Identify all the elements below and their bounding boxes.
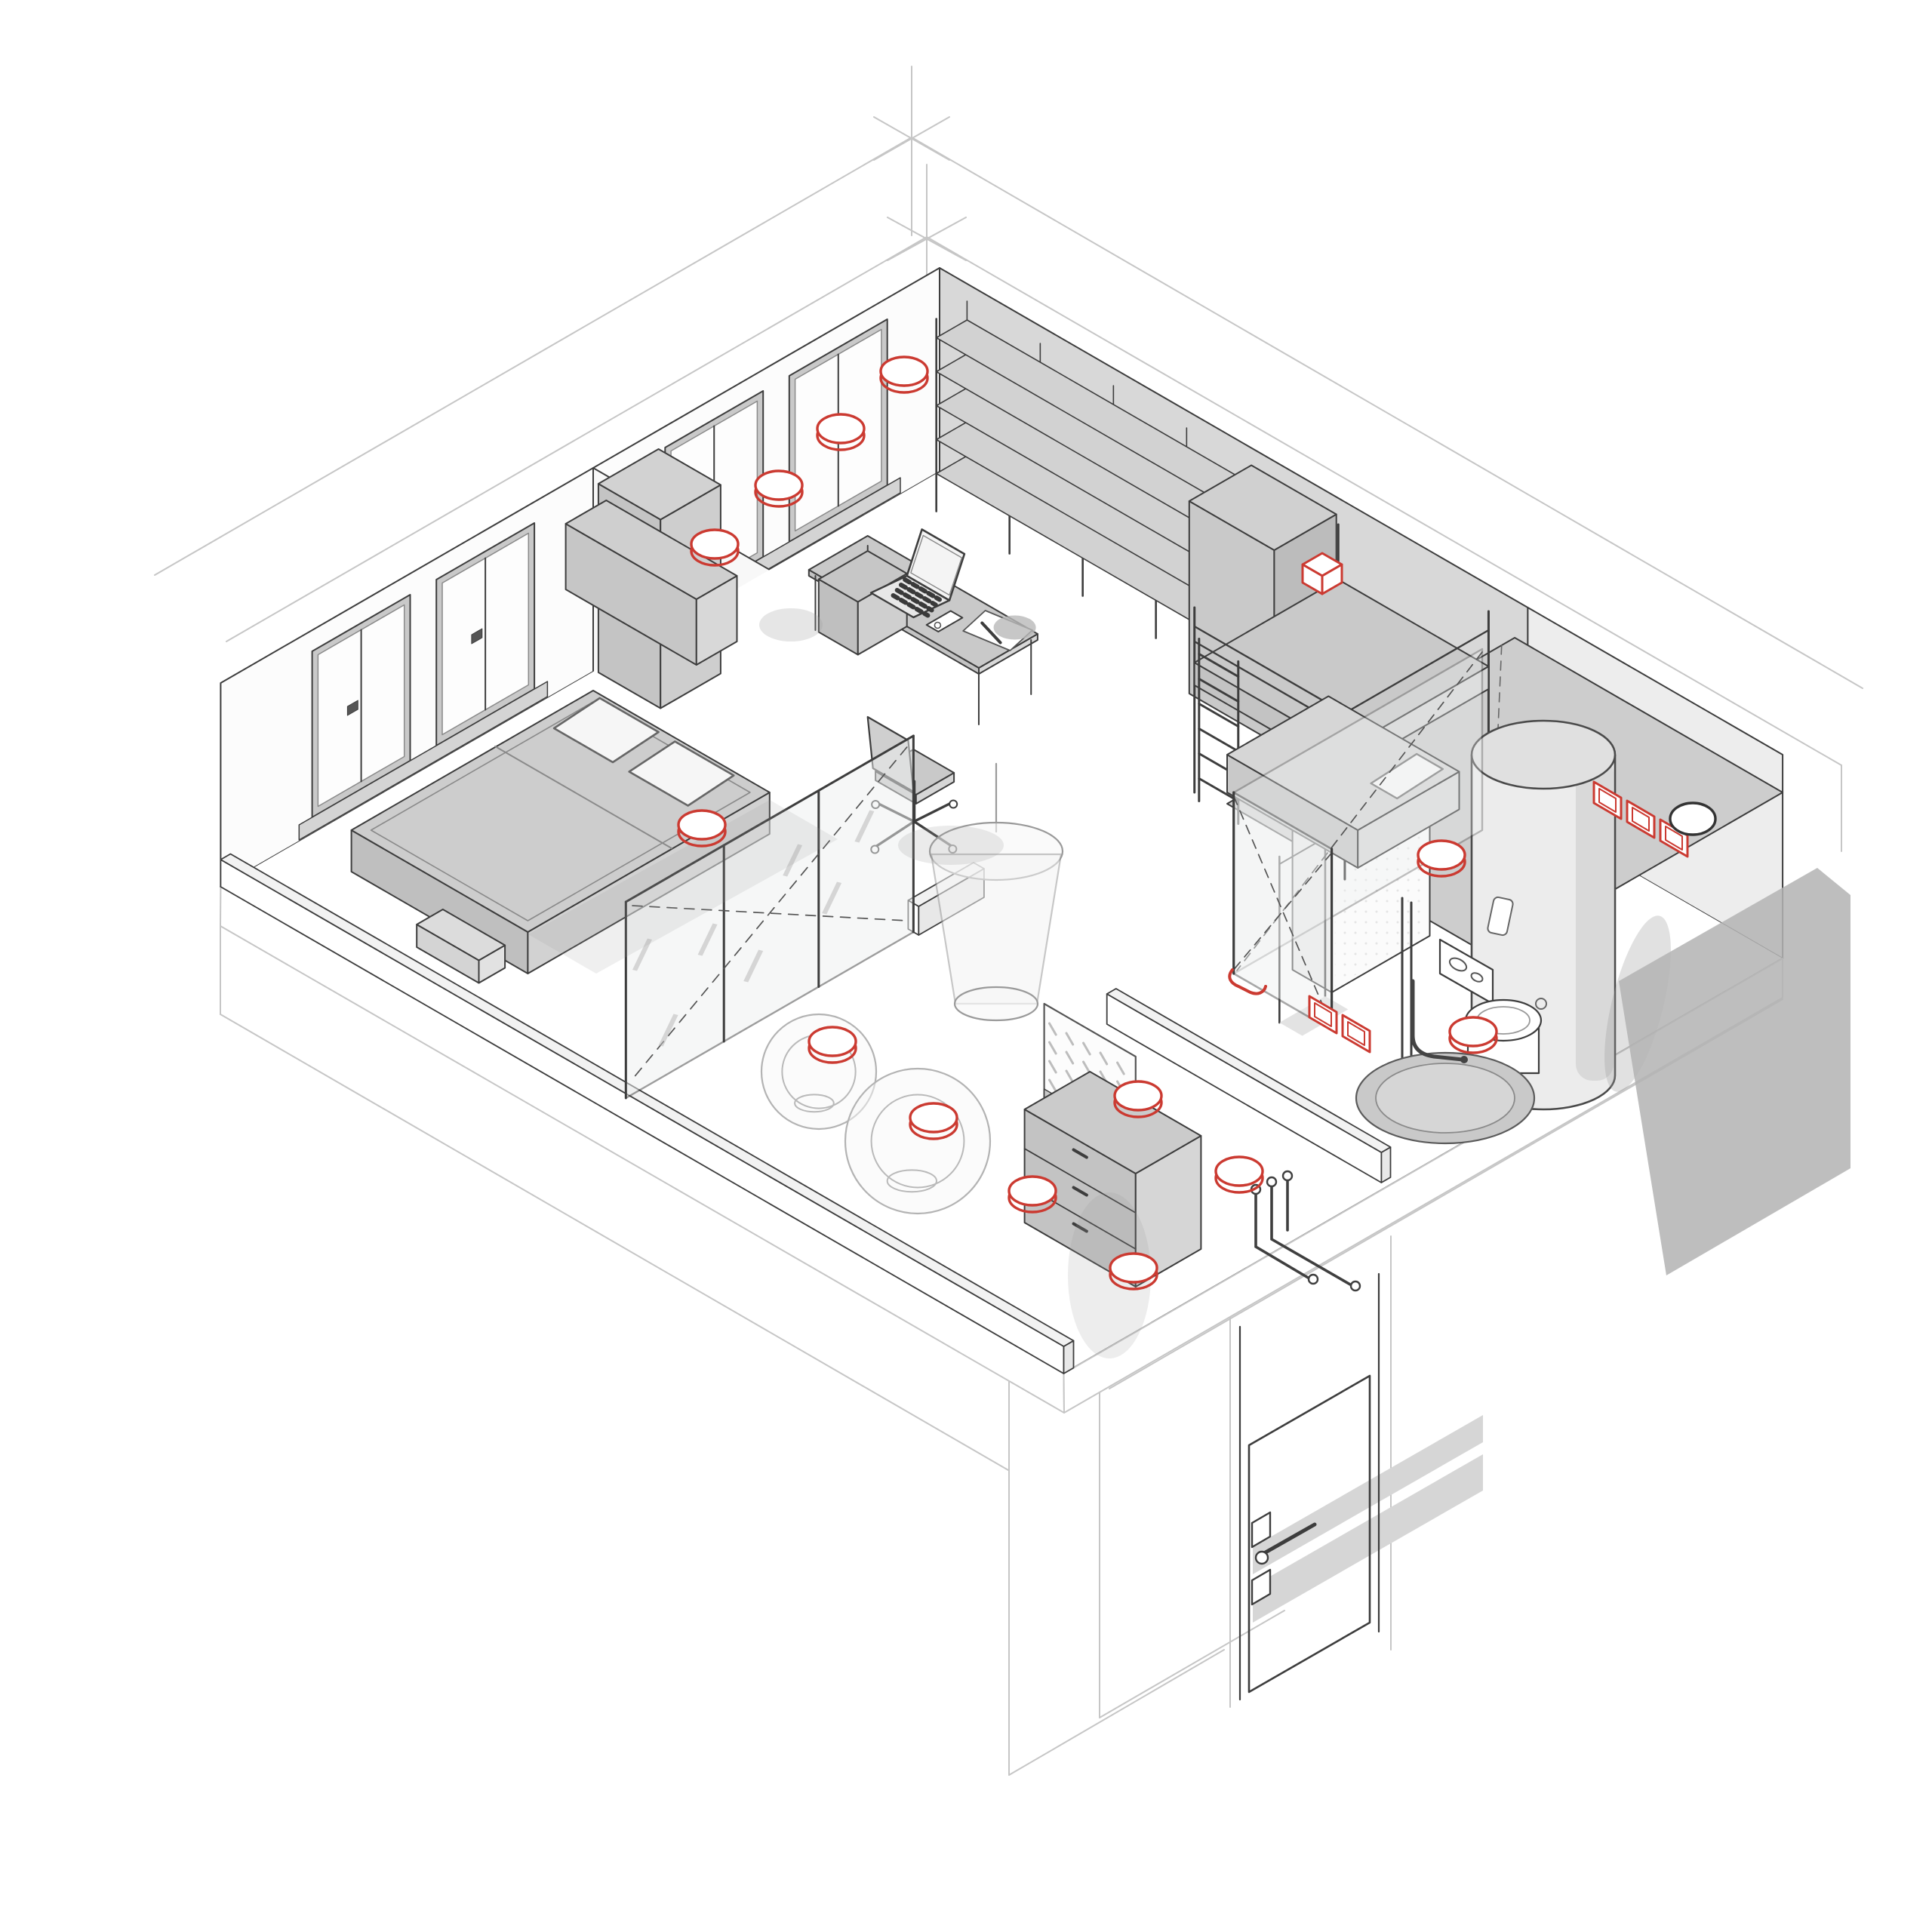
drawing-canvas	[0, 0, 1932, 1932]
axonometric-apartment-drawing	[0, 0, 1932, 1932]
ceiling-vent-marker	[1670, 803, 1715, 835]
entrance-door	[1240, 1274, 1483, 1700]
hanging-chair-outline	[845, 1069, 990, 1214]
